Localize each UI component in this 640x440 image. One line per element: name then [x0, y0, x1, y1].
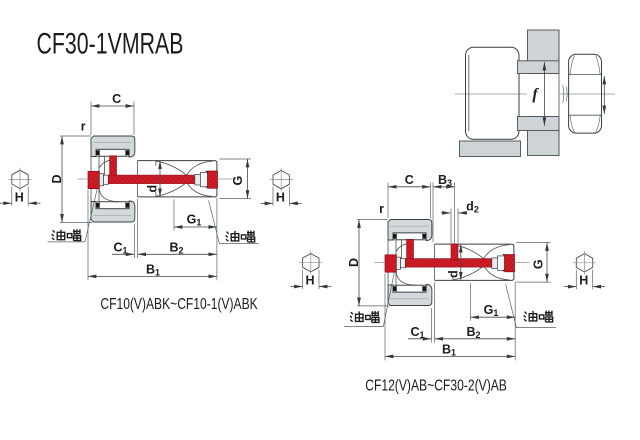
svg-text:CF30-1VMRAB: CF30-1VMRAB: [37, 28, 184, 61]
svg-text:CF12(V)AB~CF30-2(V)AB: CF12(V)AB~CF30-2(V)AB: [365, 378, 507, 395]
svg-text:D: D: [347, 258, 361, 267]
svg-text:d: d: [447, 270, 461, 278]
svg-text:G: G: [231, 176, 245, 186]
svg-text:d: d: [146, 185, 160, 193]
svg-text:r: r: [81, 119, 86, 133]
svg-text:r: r: [379, 202, 384, 216]
svg-text:G: G: [532, 259, 546, 269]
svg-text:C: C: [405, 173, 414, 187]
svg-text:CF10(V)ABK~CF10-1(V)ABK: CF10(V)ABK~CF10-1(V)ABK: [100, 296, 258, 313]
svg-text:D: D: [50, 174, 64, 183]
svg-text:C: C: [112, 92, 121, 106]
